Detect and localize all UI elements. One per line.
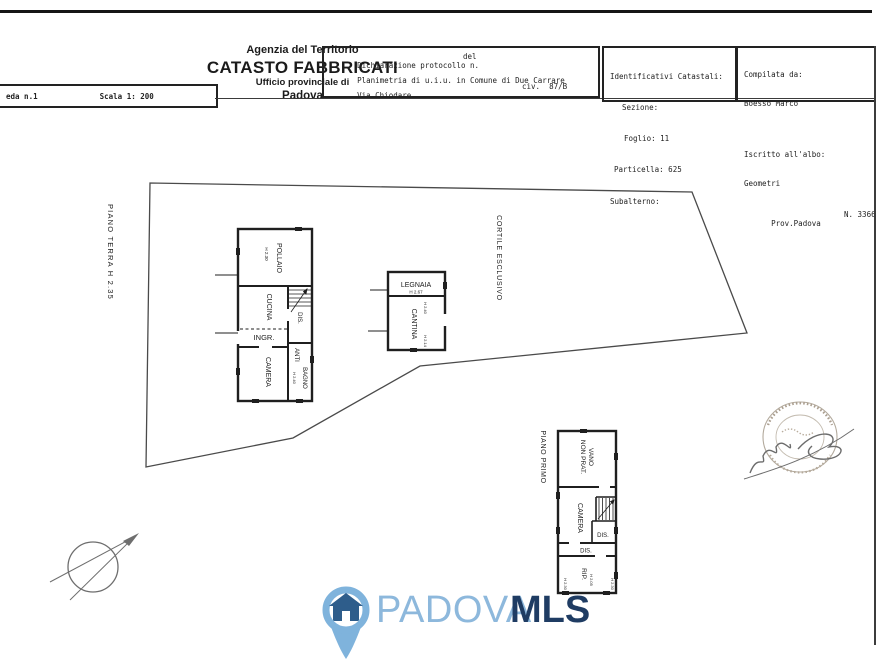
room-cucina: CUCINA [265,294,272,321]
room-bagno-height: H 2.40 [292,372,297,385]
cantina-height-top: H 2.40 [423,302,428,315]
room-disimpegno-ground: DIS. [296,312,302,324]
room-anti: ANTI [293,348,299,362]
room-non-prat: NON PRAT. [579,440,586,474]
room-dis-lower: DIS. [580,549,592,555]
rip-height-right: H 2.30 [610,578,615,591]
room-camera-first: CAMERA [576,503,583,533]
room-ingresso: INGR. [254,333,275,342]
north-compass-icon [50,533,139,600]
cortile-esclusivo-label: CORTILE ESCLUSIVO [495,215,502,301]
padovamls-logo: PADOVA MLS [326,589,590,659]
surveyor-stamp [744,402,854,479]
room-rip: RIP. [580,568,587,580]
floor-plan-drawing: PIANO TERRA H 2.35 CORTILE ESCLUSIVO PIA… [0,0,893,670]
room-legnaia-height: H 2.67 [409,290,423,295]
room-legnaia: LEGNAIA [401,282,432,289]
logo-text-mls: MLS [510,589,590,631]
piano-primo-label: PIANO PRIMO [539,430,546,483]
rip-height-mid: H 2.05 [589,574,594,587]
room-camera-ground: CAMERA [264,357,271,387]
room-cantina: CANTINA [410,309,417,340]
room-pollaio: POLLAIO [275,243,282,274]
cadastral-plan-page: eda n.1 Scala 1: 200 Agenzia del Territo… [0,0,893,670]
room-vano: VANO [587,448,594,466]
room-bagno: BAGNO [301,367,307,389]
room-pollaio-height: H 2.30 [264,247,269,261]
logo-text-padova: PADOVA [376,589,532,631]
cantina-height-bottom: H 2.14 [423,335,428,348]
room-dis-upper: DIS. [597,533,609,539]
piano-terra-label: PIANO TERRA H 2.35 [106,204,115,300]
